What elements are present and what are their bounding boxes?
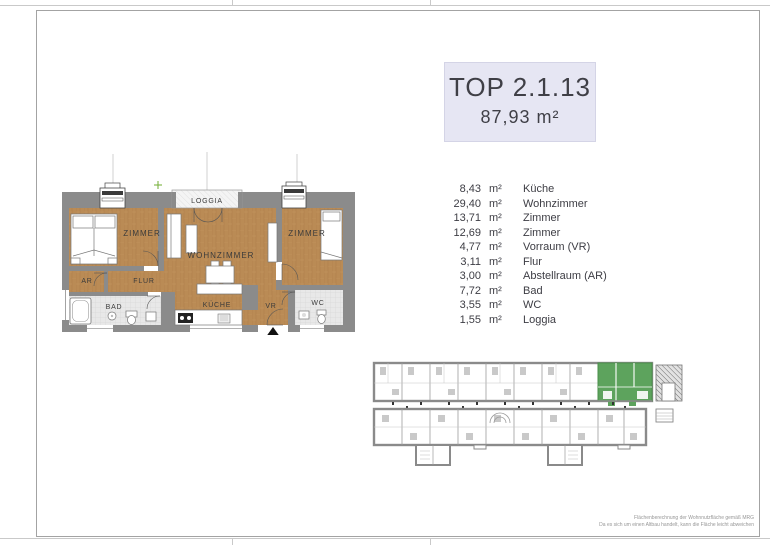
washbasin-icon xyxy=(108,312,116,320)
room-area-list: 8,43m²Küche 29,40m²Wohnzimmer 13,71m²Zim… xyxy=(447,182,607,327)
building-overview-plan xyxy=(372,357,690,469)
room-name: Küche xyxy=(523,182,554,197)
room-row: 4,77m²Vorraum (VR) xyxy=(447,240,607,255)
shelf-icon xyxy=(268,223,277,262)
room-label-kueche: KÜCHE xyxy=(203,301,232,309)
survey-cross-icon xyxy=(154,181,162,189)
loggia-wall xyxy=(238,192,242,208)
fold-mark xyxy=(232,0,233,5)
room-label-flur: FLUR xyxy=(133,278,154,285)
chimney-icon xyxy=(100,183,125,208)
room-row: 3,11m²Flur xyxy=(447,255,607,270)
room-row: 3,55m²WC xyxy=(447,298,607,313)
fold-mark xyxy=(232,538,233,545)
room-unit: m² xyxy=(489,284,509,299)
sofa-icon xyxy=(167,214,181,258)
floor-plan-sheet: TOP 2.1.13 87,93 m² 8,43m²Küche 29,40m²W… xyxy=(0,0,770,545)
room-row: 8,43m²Küche xyxy=(447,182,607,197)
room-name: Abstellraum (AR) xyxy=(523,269,607,284)
room-unit: m² xyxy=(489,269,509,284)
kitchen-island-icon xyxy=(197,284,242,294)
room-unit: m² xyxy=(489,197,509,212)
room-row: 12,69m²Zimmer xyxy=(447,226,607,241)
highlighted-unit xyxy=(598,363,652,406)
overview-side-wing xyxy=(548,445,582,465)
room-area: 3,55 xyxy=(447,298,481,313)
room-row: 7,72m²Bad xyxy=(447,284,607,299)
room-label-loggia: LOGGIA xyxy=(191,198,223,205)
room-row: 29,40m²Wohnzimmer xyxy=(447,197,607,212)
footnote-line2: Da es sich um einen Altbau handelt, kann… xyxy=(599,522,754,529)
room-label-vr: VR xyxy=(265,303,276,310)
room-label-zimmer-right: ZIMMER xyxy=(288,229,326,238)
footnote: Flächenberechnung der Wohnnutzfläche gem… xyxy=(599,515,754,529)
bed-icon xyxy=(71,214,117,264)
washbasin-icon xyxy=(299,311,309,319)
room-area: 29,40 xyxy=(447,197,481,212)
fold-mark xyxy=(430,538,431,545)
room-label-ar: AR xyxy=(81,278,92,285)
room-unit: m² xyxy=(489,211,509,226)
apartment-floorplan: ZIMMER ZIMMER WOHNZIMMER AR FLUR BAD KÜC… xyxy=(60,150,360,335)
annex-roof-hatch xyxy=(656,365,682,401)
room-unit: m² xyxy=(489,313,509,328)
room-area: 4,77 xyxy=(447,240,481,255)
room-unit: m² xyxy=(489,298,509,313)
room-label-wohnzimmer: WOHNZIMMER xyxy=(188,251,255,260)
room-row: 3,00m²Abstellraum (AR) xyxy=(447,269,607,284)
overview-side-wing xyxy=(416,445,450,465)
kitchen-counter-icon xyxy=(175,310,242,325)
room-label-wc: WC xyxy=(311,300,324,307)
room-name: Vorraum (VR) xyxy=(523,240,590,255)
footnote-line1: Flächenberechnung der Wohnnutzfläche gem… xyxy=(599,515,754,522)
room-row: 13,71m²Zimmer xyxy=(447,211,607,226)
toilet-icon xyxy=(317,310,326,324)
fold-mark xyxy=(430,0,431,5)
room-label-bad: BAD xyxy=(106,304,123,311)
room-area: 7,72 xyxy=(447,284,481,299)
room-unit: m² xyxy=(489,240,509,255)
room-unit: m² xyxy=(489,255,509,270)
overview-stair-icon xyxy=(656,409,673,422)
room-area: 1,55 xyxy=(447,313,481,328)
unit-total-area: 87,93 m² xyxy=(445,107,595,128)
room-area: 3,11 xyxy=(447,255,481,270)
room-name: Bad xyxy=(523,284,543,299)
chimney-icon xyxy=(282,182,306,208)
fold-line-bottom xyxy=(0,538,770,539)
dimension-lines xyxy=(113,152,297,190)
cabinet-icon xyxy=(186,225,197,253)
room-area: 13,71 xyxy=(447,211,481,226)
room-label-zimmer-left: ZIMMER xyxy=(123,229,161,238)
fold-line-top xyxy=(0,5,770,6)
room-area: 12,69 xyxy=(447,226,481,241)
loggia-wall xyxy=(172,192,176,208)
bathtub-icon xyxy=(70,298,91,324)
room-name: Loggia xyxy=(523,313,556,328)
room-unit: m² xyxy=(489,182,509,197)
room-name: Zimmer xyxy=(523,211,560,226)
room-area: 3,00 xyxy=(447,269,481,284)
sink-icon xyxy=(146,312,156,321)
title-box: TOP 2.1.13 87,93 m² xyxy=(444,62,596,142)
room-name: Flur xyxy=(523,255,542,270)
room-name: WC xyxy=(523,298,541,313)
room-unit: m² xyxy=(489,226,509,241)
room-row: 1,55m²Loggia xyxy=(447,313,607,328)
unit-id-title: TOP 2.1.13 xyxy=(445,72,595,103)
room-name: Zimmer xyxy=(523,226,560,241)
room-name: Wohnzimmer xyxy=(523,197,588,212)
room-area: 8,43 xyxy=(447,182,481,197)
